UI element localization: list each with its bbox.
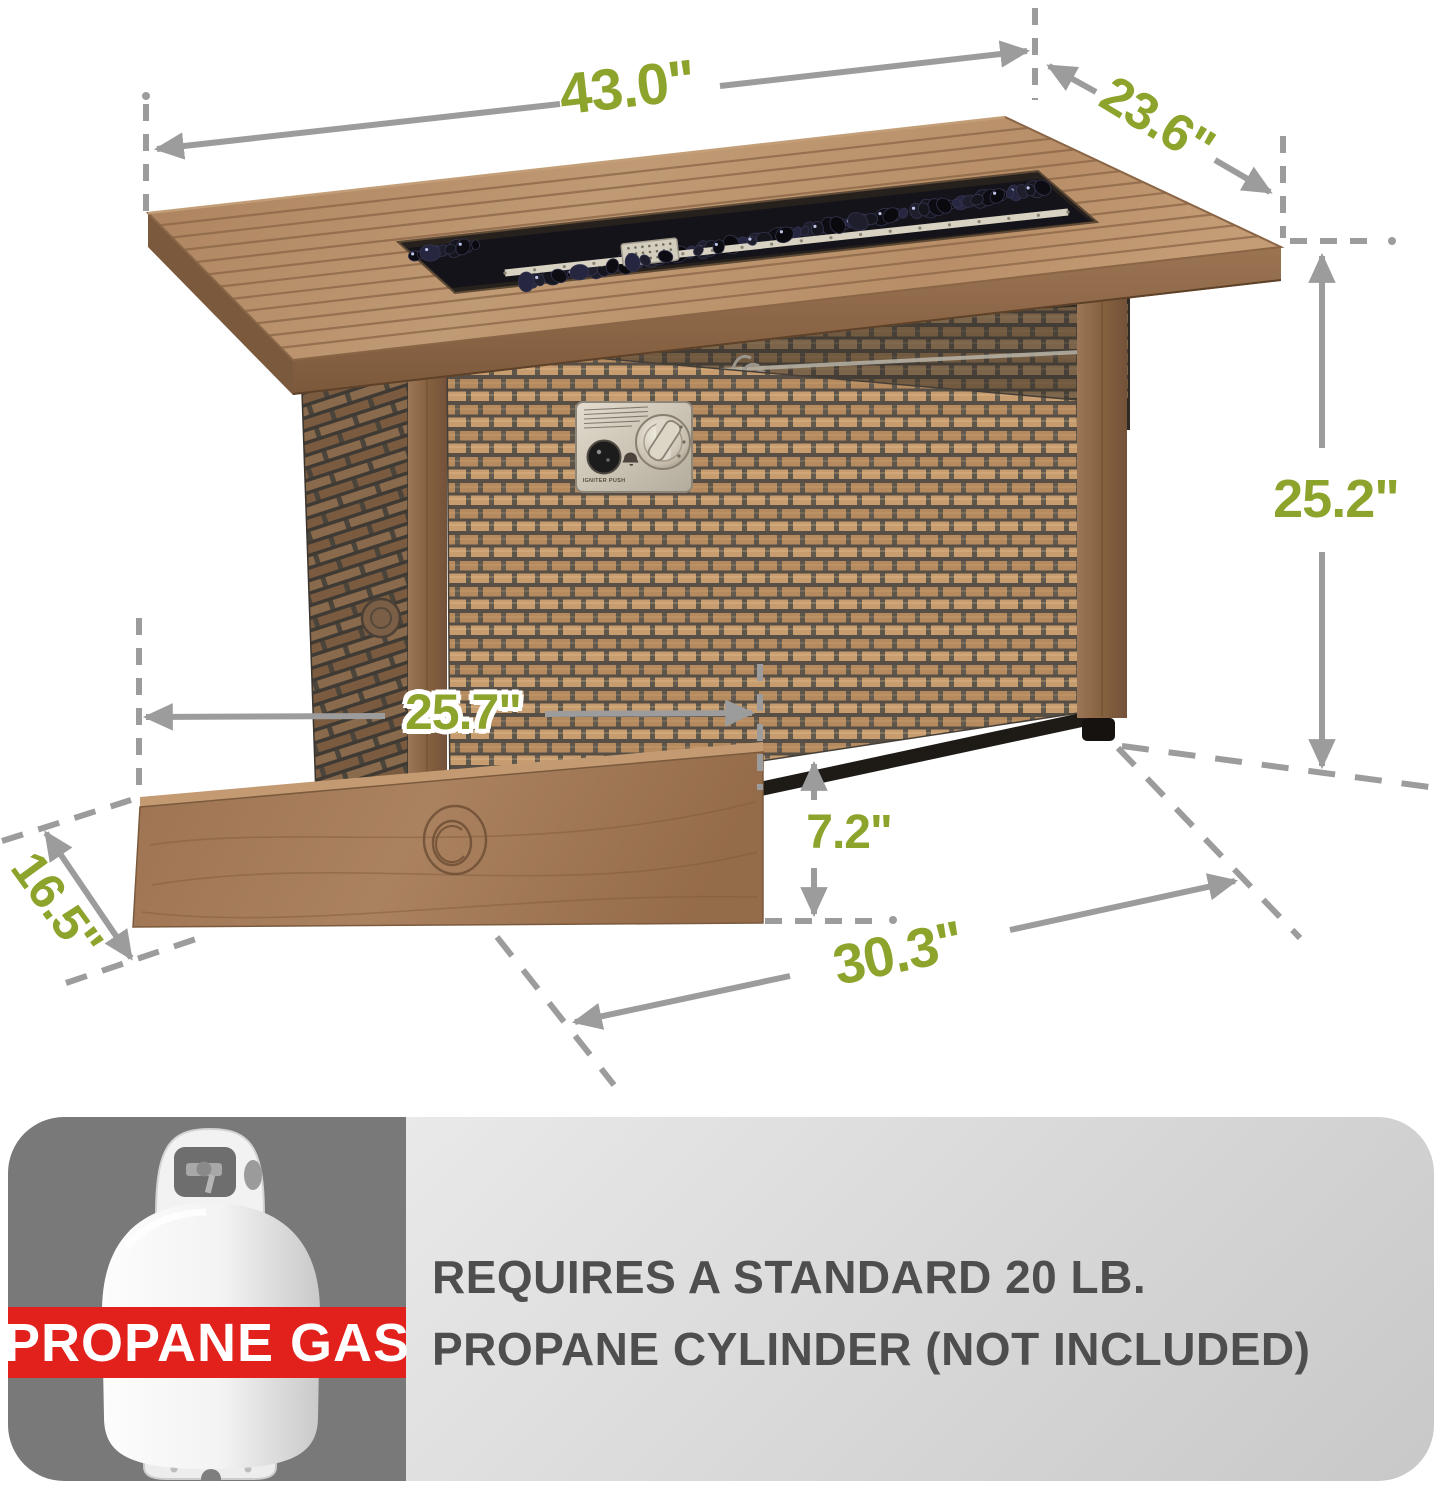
product-dimension-infographic: { "dimensions": { "top_length": {"label"… [0, 0, 1444, 1500]
igniter-button [588, 441, 621, 474]
banner-note-line-1: REQUIRES A STANDARD 20 LB. [432, 1241, 1404, 1313]
ground-line-right [1122, 746, 1444, 789]
dim-236-line-a [1049, 66, 1096, 92]
dim-303-ext-left [497, 937, 614, 1085]
side-knob [362, 599, 400, 637]
banner-left-panel: PROPANE GAS [8, 1117, 406, 1481]
dim-236-line-b [1215, 160, 1270, 192]
dim-257-line-b [545, 713, 752, 714]
dim-303-line-b [1010, 881, 1235, 930]
dim-43-line-a [157, 104, 560, 149]
propane-banner: PROPANE GAS REQUIRES A STANDARD 20 LB. P… [8, 1117, 1434, 1481]
control-knob [636, 415, 690, 469]
leveling-foot [1082, 718, 1115, 741]
dimension-label-ground-clearance: 7.2" [806, 809, 891, 857]
propane-gas-label: PROPANE GAS [8, 1312, 410, 1374]
dimension-label-inner-width: 25.7" [405, 687, 521, 737]
dimension-label-top-length: 43.0" [556, 52, 697, 125]
dimension-label-height: 25.2" [1273, 472, 1399, 526]
banner-note-line-2: PROPANE CYLINDER (NOT INCLUDED) [432, 1313, 1404, 1385]
lid-panel [133, 742, 763, 927]
igniter-push-label: IGNITER PUSH [583, 478, 626, 484]
dim-303-line-a [575, 976, 790, 1022]
propane-tank-icon [8, 1117, 406, 1481]
dim-257-line-a [146, 716, 385, 717]
dim-43-line-b [720, 51, 1027, 86]
banner-note-panel: REQUIRES A STANDARD 20 LB. PROPANE CYLIN… [406, 1117, 1434, 1481]
dim-165-ext-top [2, 800, 131, 841]
propane-gas-band: PROPANE GAS [8, 1307, 406, 1378]
dim-303-ext-right [1118, 748, 1300, 938]
